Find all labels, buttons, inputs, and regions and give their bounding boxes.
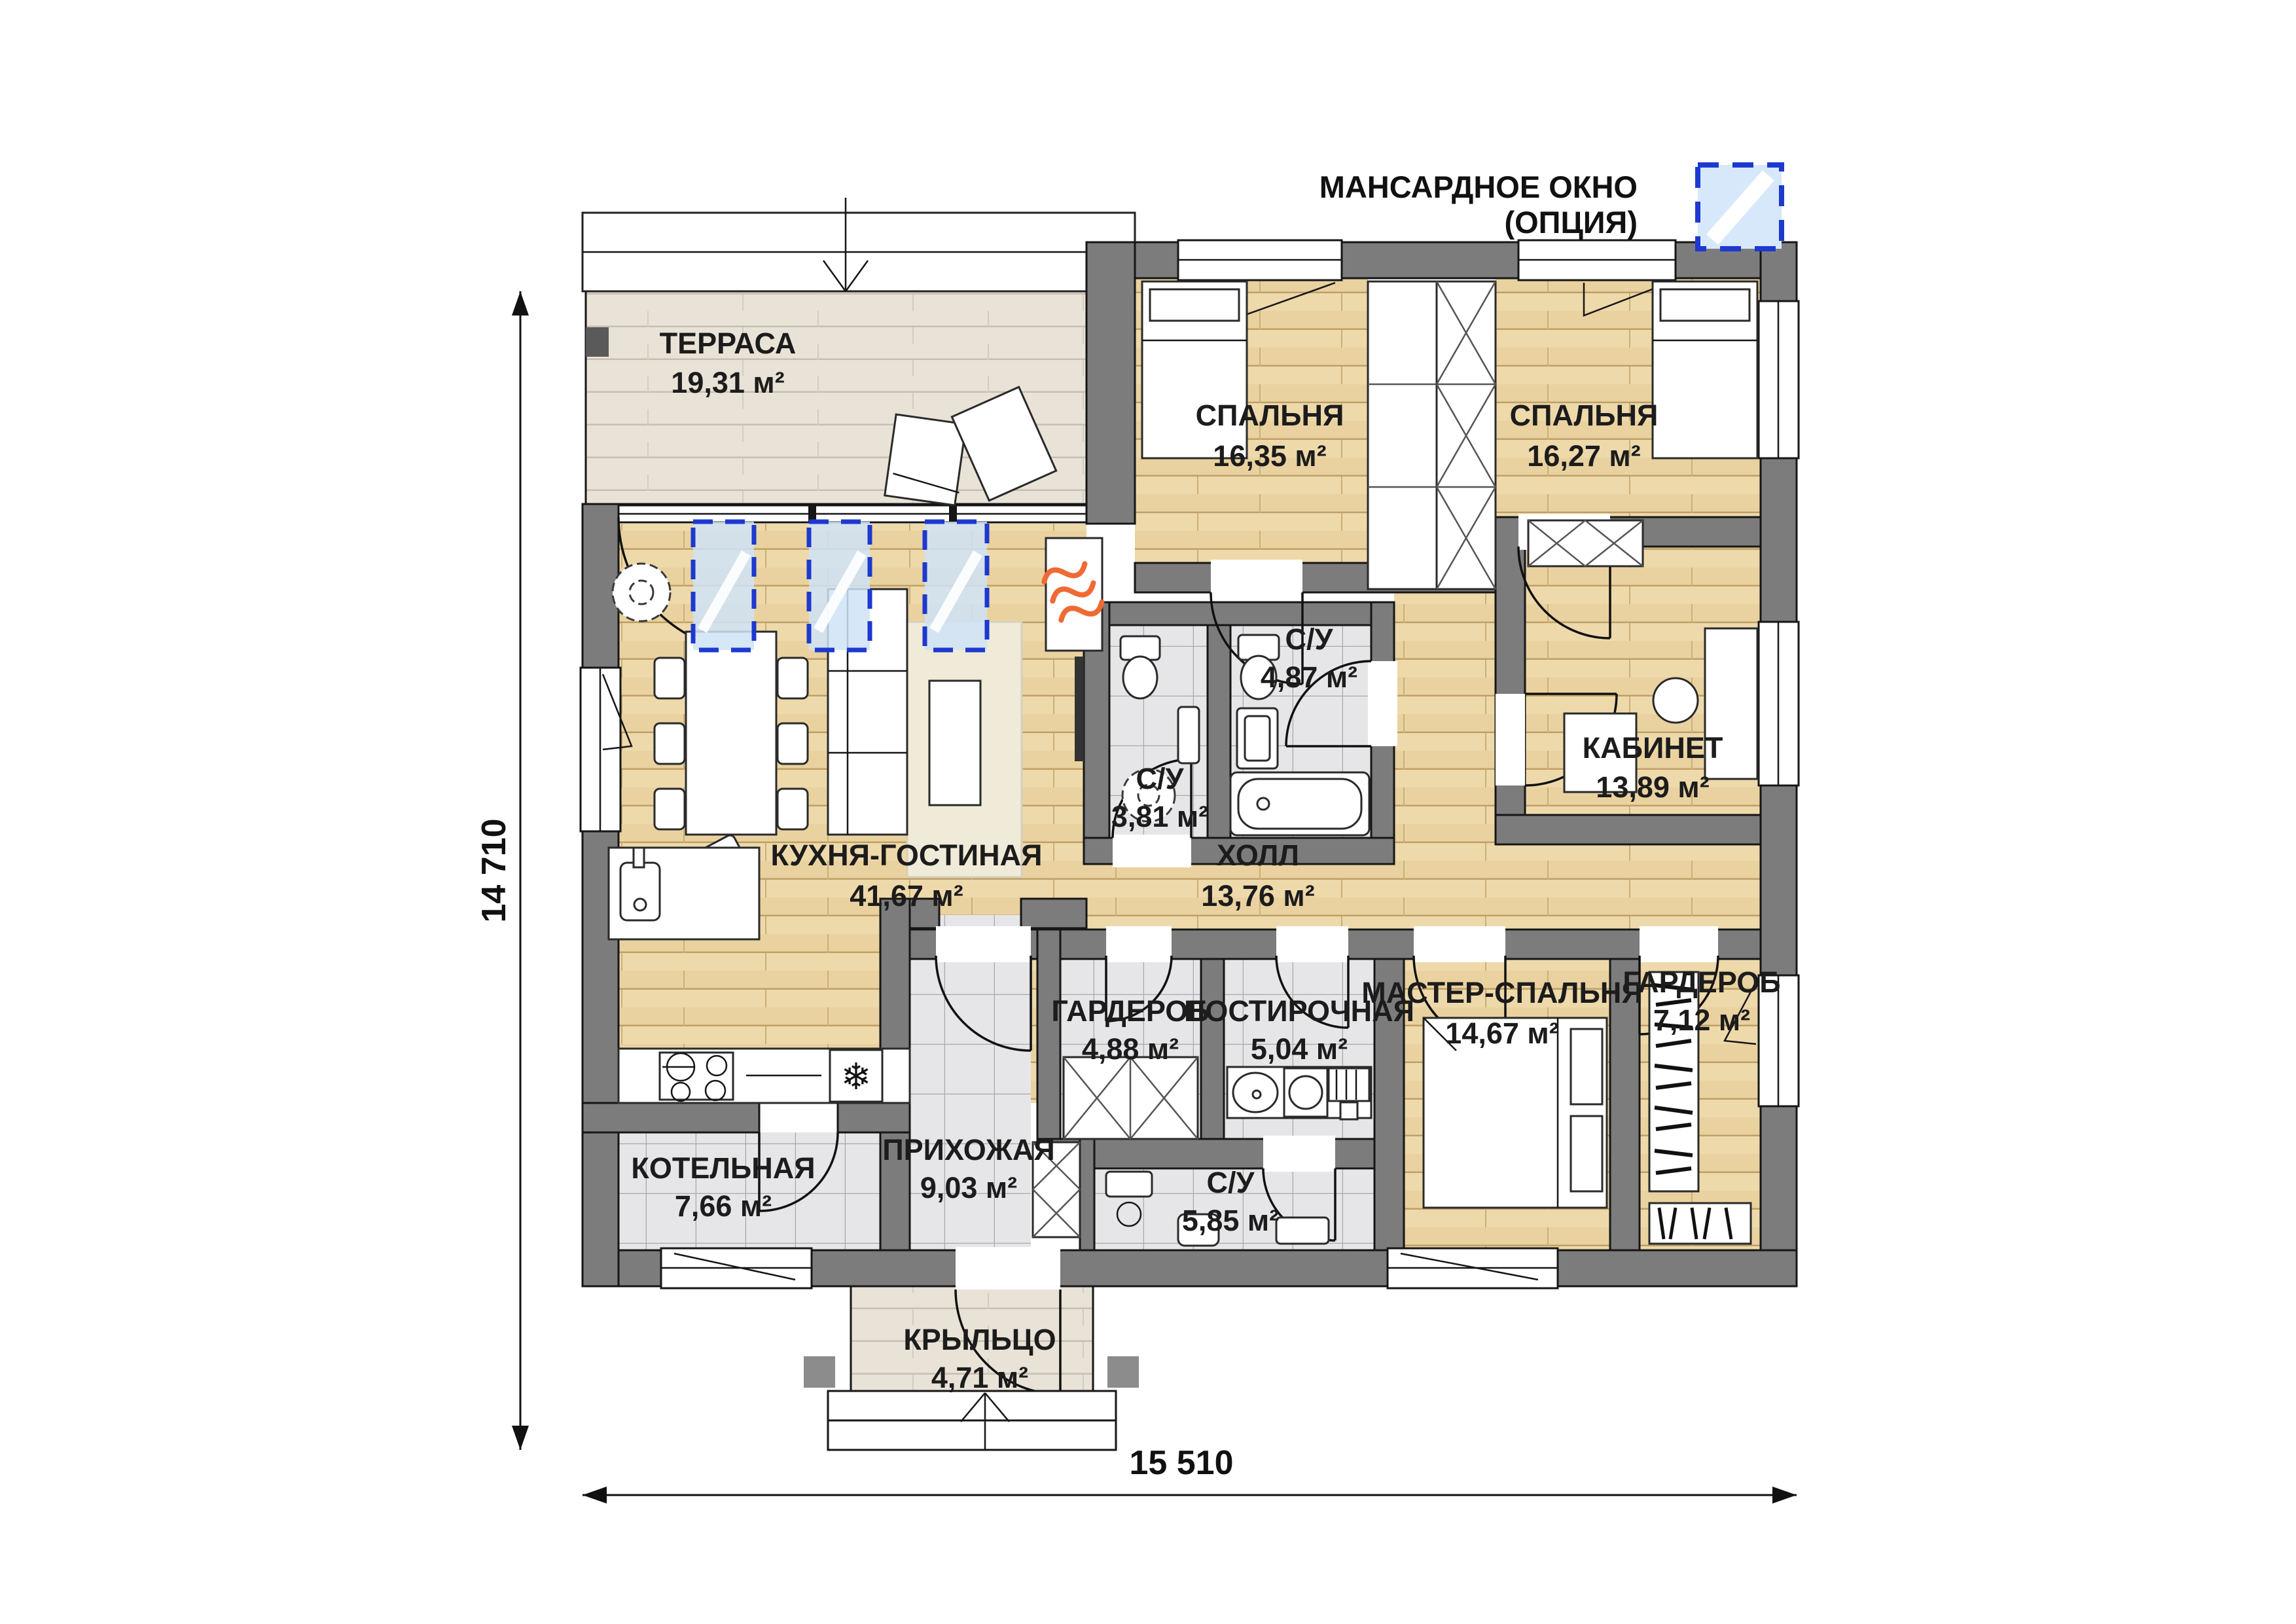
svg-text:13,89 м²: 13,89 м² bbox=[1596, 770, 1709, 804]
terrace-post bbox=[586, 327, 609, 357]
svg-text:4,88 м²: 4,88 м² bbox=[1082, 1032, 1179, 1066]
svg-text:5,04 м²: 5,04 м² bbox=[1251, 1032, 1348, 1066]
laundry-appliances bbox=[1227, 1067, 1371, 1119]
mansard-window-icon bbox=[693, 522, 754, 650]
kitchen-counter: ❄ bbox=[619, 1049, 910, 1103]
fridge: ❄ bbox=[830, 1050, 882, 1102]
svg-text:5,85 м²: 5,85 м² bbox=[1182, 1204, 1279, 1237]
dimension-width-label: 15 510 bbox=[1129, 1444, 1233, 1482]
dimension-bottom: 15 510 bbox=[583, 1444, 1797, 1504]
dimension-left: 14 710 bbox=[475, 291, 529, 1450]
svg-text:ГАРДЕРОБ: ГАРДЕРОБ bbox=[1623, 965, 1780, 999]
svg-text:16,27 м²: 16,27 м² bbox=[1527, 439, 1640, 473]
mansard-window-icon bbox=[809, 522, 870, 650]
svg-text:4,87 м²: 4,87 м² bbox=[1261, 660, 1357, 694]
legend-line1: МАНСАРДНОЕ ОКНО bbox=[1319, 170, 1638, 204]
mansard-window-options bbox=[693, 522, 987, 650]
svg-text:ТЕРРАСА: ТЕРРАСА bbox=[660, 327, 797, 360]
svg-text:КОТЕЛЬНАЯ: КОТЕЛЬНАЯ bbox=[631, 1151, 815, 1185]
svg-text:СПАЛЬНЯ: СПАЛЬНЯ bbox=[1196, 399, 1344, 432]
wardrobe-1-shelving bbox=[1064, 1057, 1198, 1139]
svg-text:С/У: С/У bbox=[1285, 623, 1334, 656]
office-closet bbox=[1528, 520, 1643, 566]
svg-text:7,66 м²: 7,66 м² bbox=[675, 1189, 772, 1223]
svg-text:4,71 м²: 4,71 м² bbox=[931, 1361, 1028, 1394]
svg-text:ХОЛЛ: ХОЛЛ bbox=[1217, 839, 1299, 872]
svg-text:С/У: С/У bbox=[1136, 762, 1185, 795]
mansard-window-icon bbox=[1698, 165, 1782, 249]
svg-text:ПРИХОЖАЯ: ПРИХОЖАЯ bbox=[882, 1133, 1054, 1166]
dimension-height-label: 14 710 bbox=[475, 818, 513, 922]
svg-text:14,67 м²: 14,67 м² bbox=[1445, 1017, 1558, 1050]
legend: МАНСАРДНОЕ ОКНО (ОПЦИЯ) bbox=[1319, 165, 1782, 249]
bedroom-divider-wardrobe bbox=[1437, 281, 1496, 589]
svg-text:16,35 м²: 16,35 м² bbox=[1213, 439, 1326, 473]
window-bottom-boiler bbox=[661, 1248, 812, 1288]
svg-text:19,31 м²: 19,31 м² bbox=[671, 366, 784, 399]
svg-text:МАСТЕР-СПАЛЬНЯ: МАСТЕР-СПАЛЬНЯ bbox=[1361, 976, 1642, 1009]
svg-text:СПАЛЬНЯ: СПАЛЬНЯ bbox=[1510, 399, 1659, 432]
window-bottom-master bbox=[1388, 1248, 1558, 1288]
svg-text:КУХНЯ-ГОСТИНАЯ: КУХНЯ-ГОСТИНАЯ bbox=[771, 839, 1043, 872]
tv bbox=[1075, 657, 1084, 761]
plant-icon bbox=[630, 581, 653, 604]
bedroom-1-closet bbox=[1368, 281, 1437, 589]
porch-post bbox=[1107, 1356, 1139, 1388]
svg-text:41,67 м²: 41,67 м² bbox=[850, 879, 963, 912]
svg-text:3,81 м²: 3,81 м² bbox=[1111, 800, 1208, 833]
floor-plan: ❄ bbox=[0, 0, 2296, 1624]
porch-post bbox=[804, 1356, 835, 1388]
svg-text:7,12 м²: 7,12 м² bbox=[1653, 1003, 1750, 1037]
bed-bedroom-2 bbox=[1653, 281, 1757, 458]
svg-text:9,03 м²: 9,03 м² bbox=[920, 1171, 1017, 1204]
svg-text:КАБИНЕТ: КАБИНЕТ bbox=[1583, 731, 1723, 765]
svg-text:13,76 м²: 13,76 м² bbox=[1201, 879, 1314, 912]
mansard-window-icon bbox=[925, 522, 987, 650]
svg-text:С/У: С/У bbox=[1207, 1166, 1255, 1199]
heater-icon bbox=[1041, 538, 1105, 651]
snowflake-icon: ❄ bbox=[841, 1056, 872, 1097]
legend-line2: (ОПЦИЯ) bbox=[1504, 205, 1638, 240]
coffee-table bbox=[929, 681, 980, 805]
stove-icon bbox=[660, 1053, 733, 1101]
svg-text:КРЫЛЬЦО: КРЫЛЬЦО bbox=[903, 1323, 1056, 1356]
kitchen-island bbox=[609, 848, 759, 939]
hall-floor bbox=[1394, 563, 1496, 929]
